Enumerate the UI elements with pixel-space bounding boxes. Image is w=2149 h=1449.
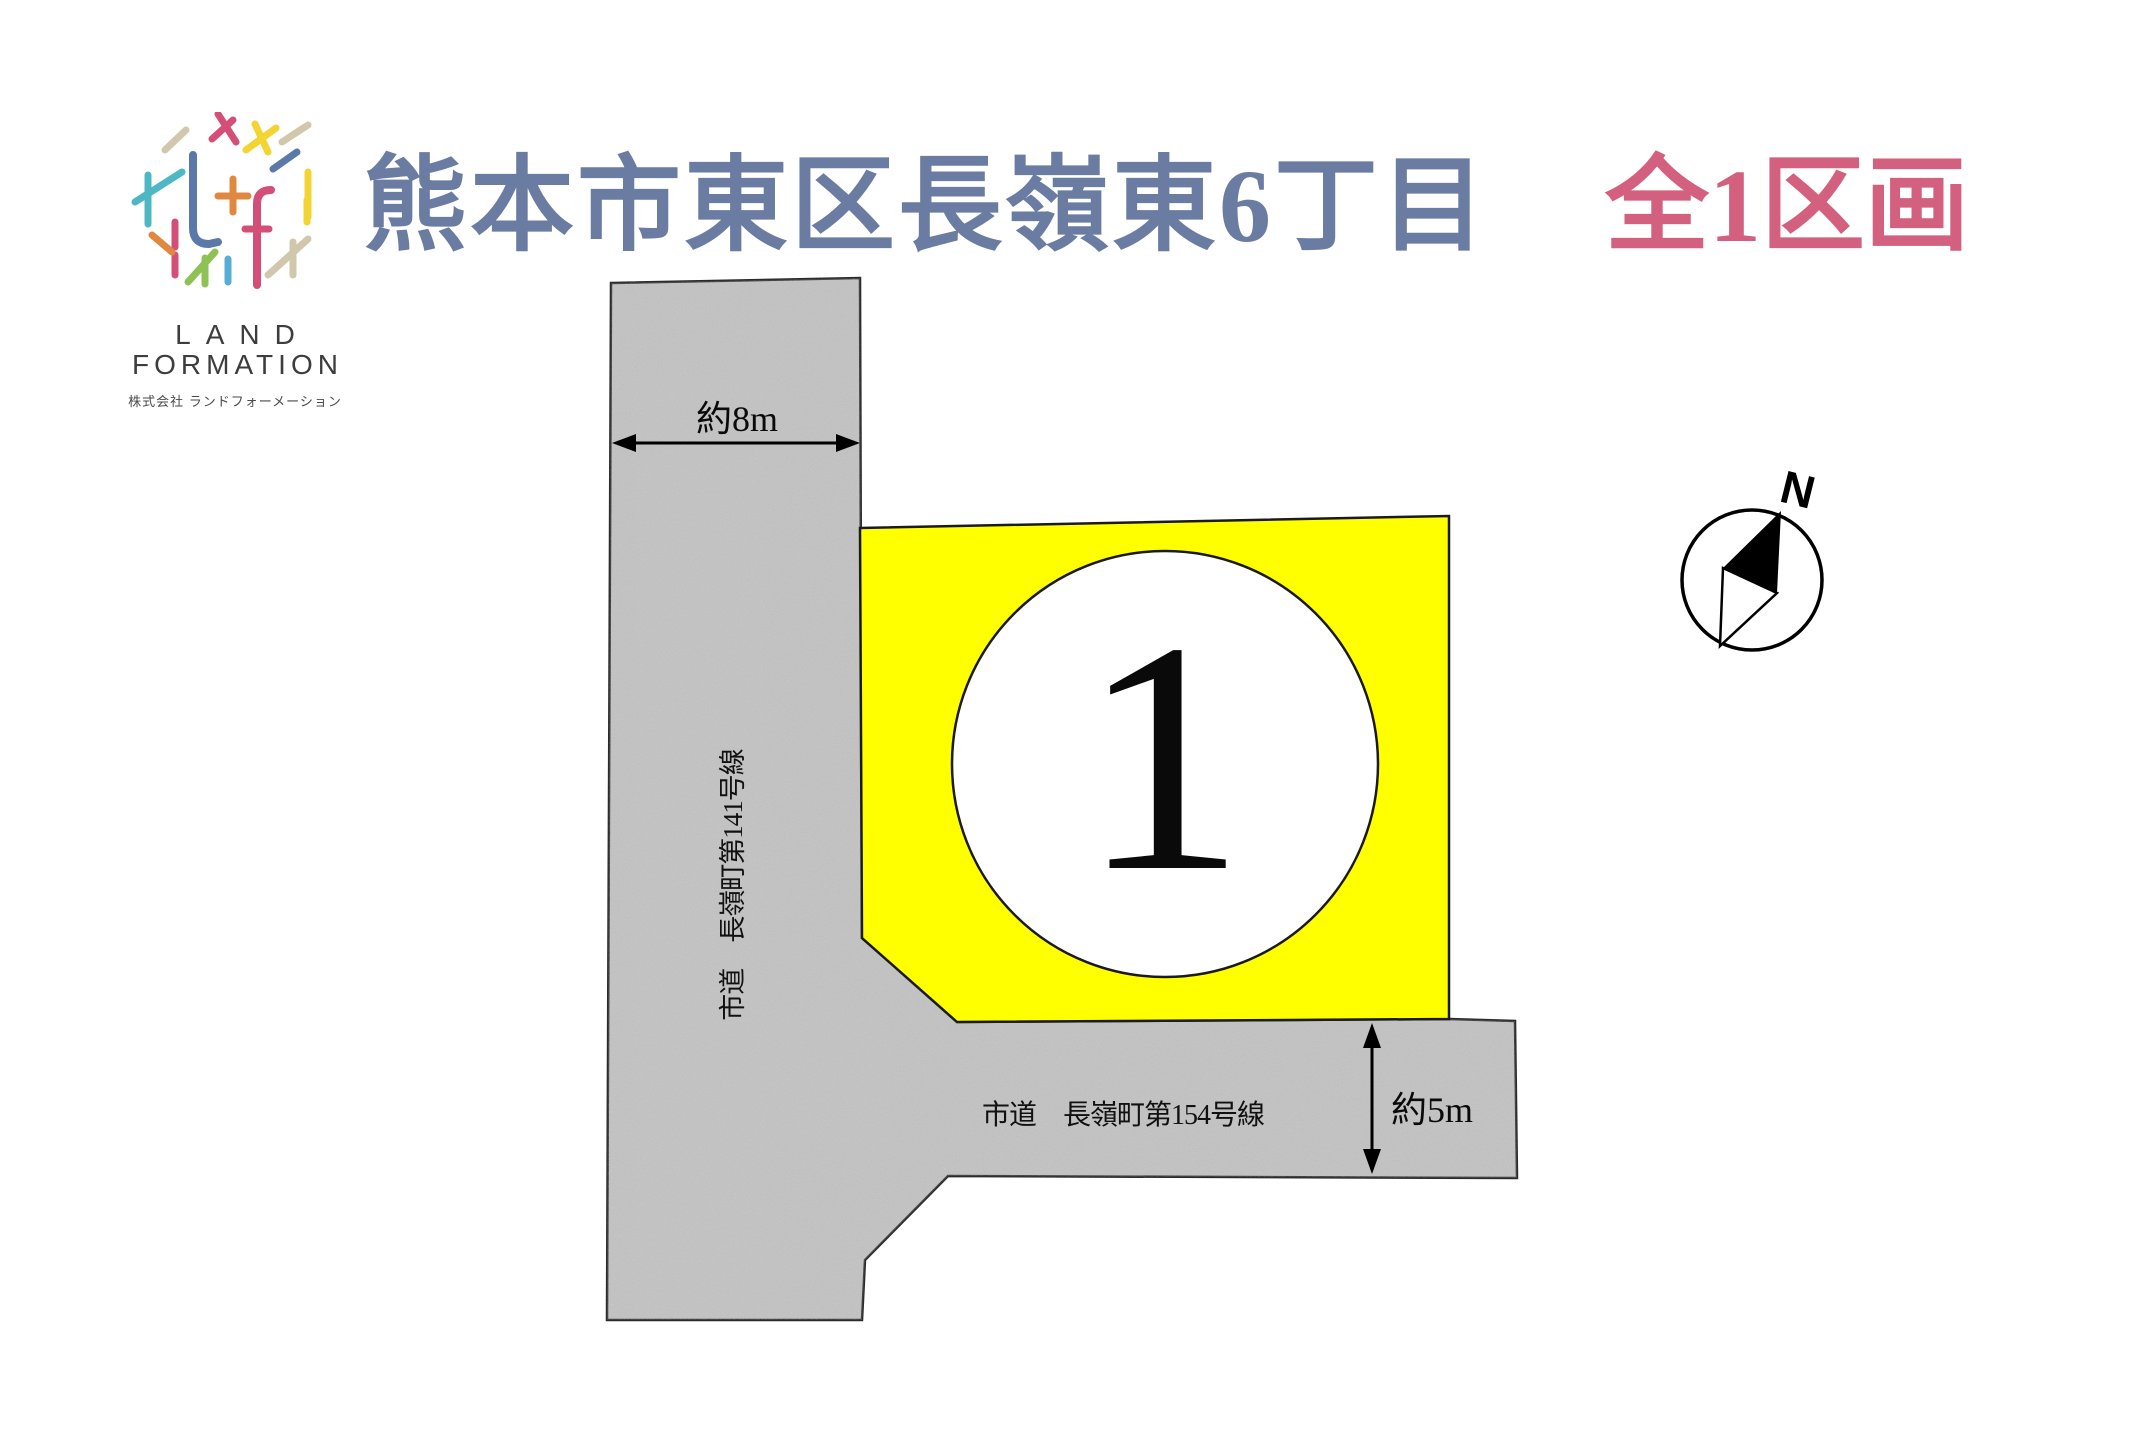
horizontal-road-name: 市道 長嶺町第154号線 [982,1099,1264,1131]
north-label: N [1775,460,1820,518]
compass: N [1682,460,1822,650]
vertical-road-name: 市道 長嶺町第141号線 [718,748,748,1020]
plot-number: 1 [1081,575,1246,940]
site-plan-diagram: 1 約8m 市道 長嶺町第141号線 市道 長嶺町第154号線 約5m N [0,0,2149,1449]
dimension-5m-label: 約5m [1391,1090,1473,1130]
flyer-canvas: LAND FORMATION 株式会社 ランドフォーメーション 熊本市東区長嶺東… [0,0,2149,1449]
dimension-8m-label: 約8m [696,399,778,439]
